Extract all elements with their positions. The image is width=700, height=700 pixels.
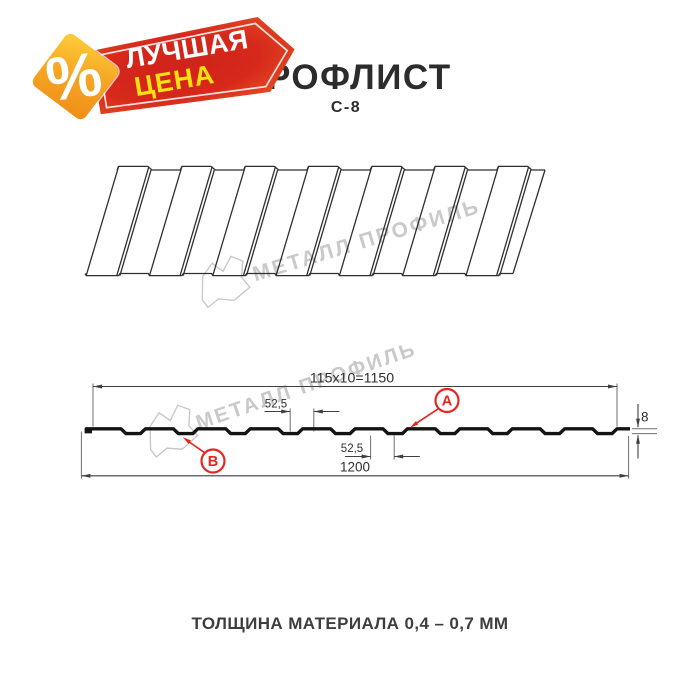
marker-a-label: A bbox=[442, 394, 453, 410]
thickness-note: ТОЛЩИНА МАТЕРИАЛА 0,4 – 0,7 ММ bbox=[191, 614, 508, 634]
page: МЕТАЛЛ ПРОФИЛЬ МЕТАЛЛ ПРОФИЛЬ 115x10=115… bbox=[0, 0, 700, 700]
profile-3d-drawing bbox=[85, 166, 545, 275]
product-model: С-8 bbox=[331, 99, 361, 117]
dimension-total-top: 115x10=1150 bbox=[310, 371, 394, 387]
percent-symbol: % bbox=[42, 43, 105, 112]
marker-b-label: B bbox=[208, 454, 218, 470]
watermark-brand-text: МЕТАЛЛ ПРОФИЛЬ bbox=[250, 195, 483, 286]
watermark-3d: МЕТАЛЛ ПРОФИЛЬ bbox=[193, 183, 486, 310]
brand-logo-icon bbox=[140, 402, 201, 459]
brand-logo-icon bbox=[193, 253, 253, 309]
dimension-height: 8 bbox=[641, 410, 649, 425]
dimension-total-bottom: 1200 bbox=[340, 460, 370, 475]
dimension-rib-bottom: 52,5 bbox=[341, 443, 363, 455]
watermark-section: МЕТАЛЛ ПРОФИЛЬ bbox=[140, 326, 422, 459]
dimension-rib-top: 52,5 bbox=[265, 399, 287, 411]
